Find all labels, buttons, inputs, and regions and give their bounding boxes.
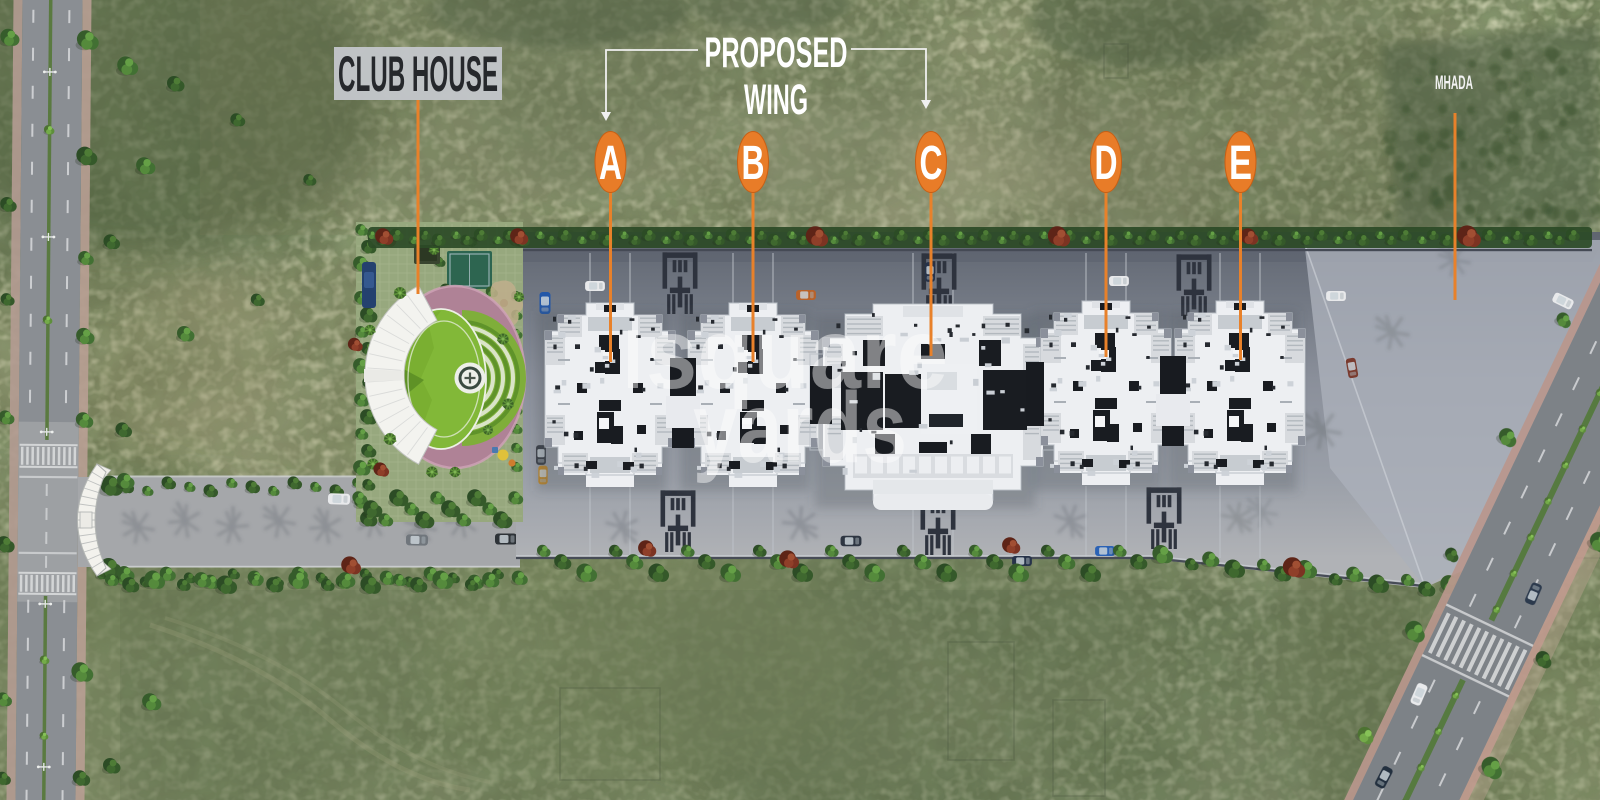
svg-text:PROPOSED: PROPOSED <box>705 29 848 77</box>
svg-text:B: B <box>742 137 765 190</box>
svg-text:D: D <box>1095 137 1118 190</box>
svg-text:MHADA: MHADA <box>1435 73 1473 94</box>
svg-text:WING: WING <box>744 76 808 124</box>
svg-text:CLUB HOUSE: CLUB HOUSE <box>338 46 498 102</box>
svg-text:C: C <box>920 137 943 190</box>
svg-text:E: E <box>1229 137 1252 190</box>
svg-text:yards: yards <box>693 372 907 484</box>
svg-text:A: A <box>599 137 622 190</box>
